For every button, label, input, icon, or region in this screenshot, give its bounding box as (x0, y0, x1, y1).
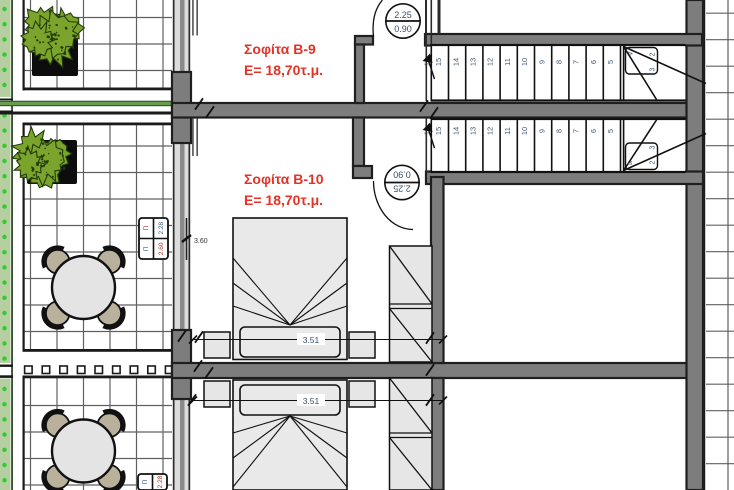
svg-text:13: 13 (468, 127, 477, 135)
svg-text:3.60: 3.60 (194, 238, 208, 245)
svg-text:10: 10 (520, 127, 529, 135)
svg-text:2.60: 2.60 (158, 242, 165, 255)
svg-text:13: 13 (468, 58, 477, 66)
svg-text:10: 10 (520, 58, 529, 66)
svg-text:9: 9 (537, 129, 546, 133)
svg-text:14: 14 (451, 127, 460, 135)
svg-text:2.25: 2.25 (393, 184, 411, 194)
svg-text:8: 8 (554, 129, 563, 133)
svg-text:Ε= 18,70τ.μ.: Ε= 18,70τ.μ. (244, 62, 323, 78)
svg-text:3: 3 (649, 145, 656, 149)
svg-text:12: 12 (486, 58, 495, 66)
svg-text:2.28: 2.28 (157, 475, 164, 488)
svg-text:14: 14 (451, 58, 460, 66)
svg-text:2: 2 (649, 160, 656, 164)
svg-text:5: 5 (606, 60, 615, 64)
svg-text:Π: Π (143, 226, 150, 231)
svg-text:Π: Π (143, 246, 150, 251)
svg-text:11: 11 (503, 58, 512, 66)
svg-text:Π: Π (142, 479, 149, 484)
svg-text:2.25: 2.25 (394, 10, 412, 20)
svg-text:3.51: 3.51 (303, 335, 320, 345)
svg-text:Σοφίτα Β-9: Σοφίτα Β-9 (244, 41, 316, 57)
svg-text:Σοφίτα Β-10: Σοφίτα Β-10 (244, 171, 324, 187)
svg-text:7: 7 (572, 60, 581, 64)
svg-text:0.90: 0.90 (394, 24, 412, 34)
svg-text:11: 11 (503, 127, 512, 135)
svg-text:5: 5 (606, 129, 615, 133)
svg-text:12: 12 (486, 127, 495, 135)
svg-text:6: 6 (589, 60, 598, 64)
svg-text:Ε= 18,70τ.μ.: Ε= 18,70τ.μ. (244, 192, 323, 208)
svg-text:9: 9 (537, 60, 546, 64)
svg-text:3.51: 3.51 (303, 396, 320, 406)
svg-text:3: 3 (649, 67, 656, 71)
svg-text:0.90: 0.90 (393, 170, 411, 180)
svg-text:6: 6 (589, 129, 598, 133)
svg-text:7: 7 (572, 129, 581, 133)
svg-text:2: 2 (649, 52, 656, 56)
svg-text:15: 15 (434, 58, 443, 66)
svg-text:2.28: 2.28 (158, 221, 165, 234)
svg-text:8: 8 (554, 60, 563, 64)
svg-text:15: 15 (434, 127, 443, 135)
